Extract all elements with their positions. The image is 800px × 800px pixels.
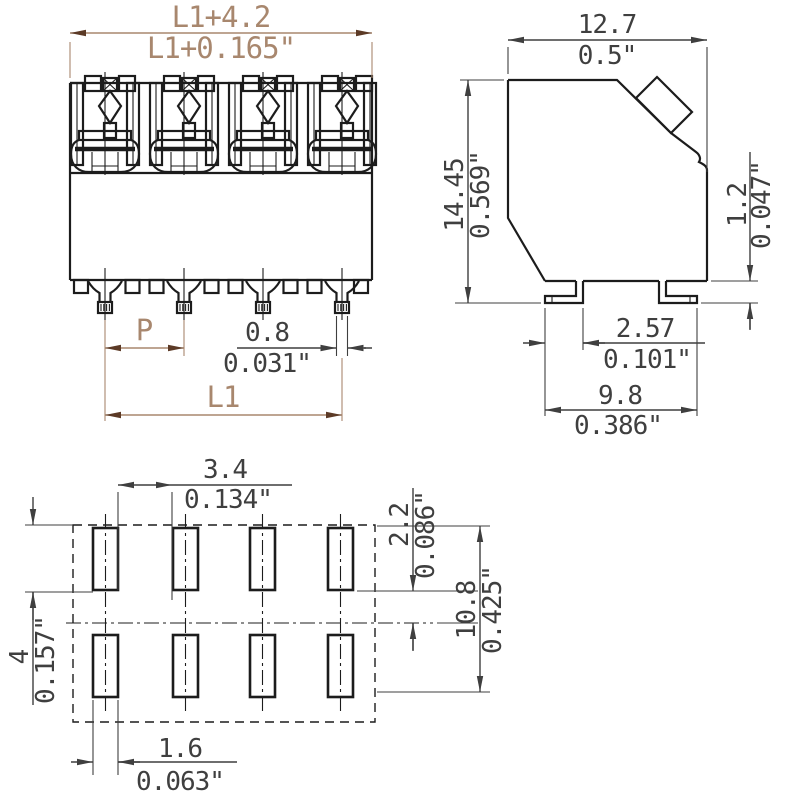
- dim-pad-gap-mm: 3.4: [203, 455, 247, 485]
- latch-lever: [636, 77, 692, 133]
- dim-edge-in: 0.157": [31, 616, 61, 704]
- smt-leg-left: [545, 281, 583, 303]
- dim-height-in: 0.569": [466, 151, 496, 239]
- dim-pad-width-mm: 1.6: [158, 734, 202, 764]
- dim-row-span-in: 0.425": [478, 566, 508, 654]
- technical-drawing: L1+4.2 L1+0.165" P L1 0.8 0.031": [0, 0, 800, 800]
- dim-standoff-in: 0.047": [747, 161, 777, 249]
- dim-pitch-label: P: [136, 313, 153, 347]
- dim-foot-in: 0.101": [603, 345, 691, 375]
- dim-width-mm: 12.7: [578, 10, 637, 40]
- front-view: [70, 72, 376, 320]
- dim-foot-mm: 2.57: [616, 314, 675, 344]
- dim-pin-span-label: L1: [207, 380, 240, 414]
- dim-pad-width-in: 0.063": [136, 767, 224, 797]
- smt-leg-right: [659, 281, 697, 303]
- dim-pad-gap-in: 0.134": [184, 485, 272, 515]
- side-view: [508, 77, 707, 303]
- dim-overall-width-mm: L1+4.2: [172, 0, 271, 34]
- dim-pad-height-in: 0.086": [411, 491, 441, 579]
- footprint-view: [66, 514, 433, 722]
- dim-pin-width-mm: 0.8: [245, 318, 289, 348]
- dim-width-in: 0.5": [578, 41, 637, 71]
- dim-span-mm: 9.8: [598, 381, 642, 411]
- dim-pin-width-in: 0.031": [223, 349, 311, 379]
- dim-span-in: 0.386": [574, 411, 662, 441]
- dim-overall-width-in: L1+0.165": [147, 31, 295, 65]
- drawing-canvas: L1+4.2 L1+0.165" P L1 0.8 0.031": [0, 0, 800, 800]
